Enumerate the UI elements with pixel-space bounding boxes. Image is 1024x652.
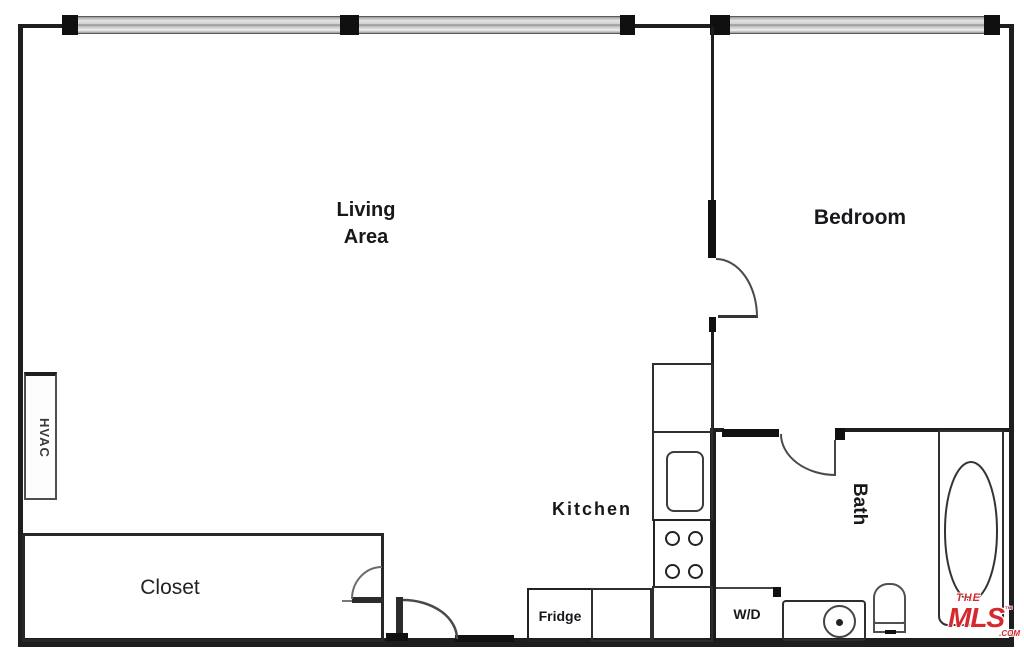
window-end-cap xyxy=(620,15,635,35)
bath-door-leaf xyxy=(834,440,836,476)
wd-divider-tick xyxy=(773,587,781,597)
bedroom-door-arc xyxy=(716,259,757,317)
bedroom-door-jamb-top xyxy=(708,200,716,258)
stove-burner xyxy=(665,531,680,546)
closet-door-leaf xyxy=(352,597,383,603)
bath-door-jamb xyxy=(835,428,845,440)
window-1 xyxy=(76,16,341,34)
wall-right xyxy=(1009,24,1014,645)
entry-door-arc xyxy=(403,600,457,639)
window-end-cap xyxy=(984,15,1000,35)
bath-door-header-bar xyxy=(722,429,779,437)
entry-threshold xyxy=(455,635,514,642)
bedroom-door-leaf xyxy=(718,315,758,318)
window-end-cap xyxy=(62,15,78,35)
room-label-closet: Closet xyxy=(118,576,222,600)
kitchen-stove xyxy=(653,519,712,588)
counter-beside-fridge xyxy=(591,588,652,642)
entry-door-jamb-base xyxy=(386,633,408,641)
floor-plan: HVAC Fridge W/D Living Area Bedroom Kitc… xyxy=(0,0,1024,652)
living-area-line1: Living xyxy=(306,197,426,224)
stove-burner xyxy=(688,564,703,579)
room-label-bath: Bath xyxy=(842,472,870,536)
window-2 xyxy=(358,16,621,34)
toilet-base-tick xyxy=(885,630,896,634)
hvac-label: HVAC xyxy=(30,408,52,468)
wd-divider-line xyxy=(716,587,775,589)
bedroom-wall-upper xyxy=(711,27,714,201)
kitchen-pantry-cabinet xyxy=(652,363,713,433)
window-3 xyxy=(729,16,985,34)
room-label-kitchen: Kitchen xyxy=(538,499,646,520)
mls-logo: THE MLS™ .COM xyxy=(948,593,1024,638)
vanity-drain xyxy=(836,619,843,626)
washer-dryer-label: W/D xyxy=(716,606,778,622)
closet-door-leaf-line xyxy=(342,600,352,602)
bath-door-arc xyxy=(781,434,836,475)
kitchen-sink xyxy=(666,451,704,512)
room-label-living-area: Living Area xyxy=(306,197,426,251)
living-area-line2: Area xyxy=(306,224,426,251)
stove-burner xyxy=(665,564,680,579)
kitchen-counter-lower xyxy=(652,586,713,642)
mls-logo-tm: ™ xyxy=(1004,606,1011,614)
bedroom-door-jamb-mid xyxy=(709,317,716,332)
fridge-label: Fridge xyxy=(527,608,593,624)
window-end-cap xyxy=(340,15,359,35)
mls-logo-mls: MLS™ xyxy=(948,604,1024,632)
room-label-bedroom: Bedroom xyxy=(800,206,920,230)
toilet xyxy=(873,583,906,624)
stove-burner xyxy=(688,531,703,546)
